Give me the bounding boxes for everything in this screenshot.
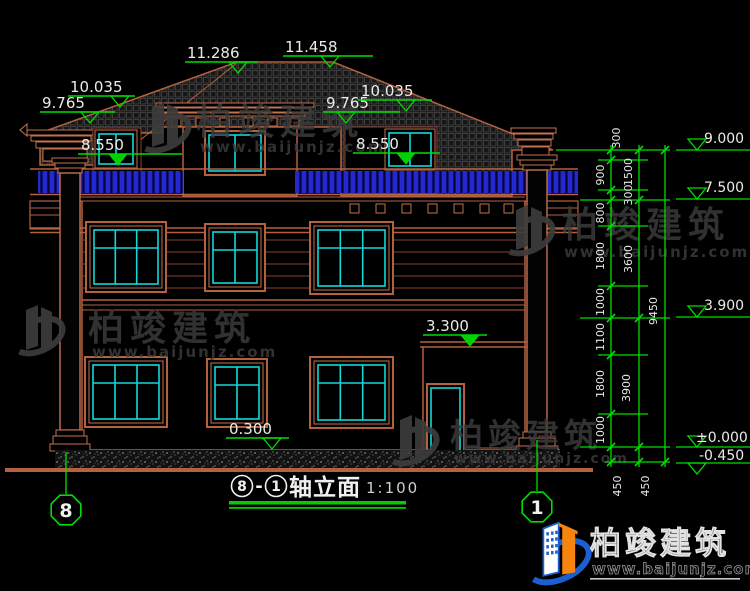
dim-label: 3900 — [620, 374, 633, 402]
level-value: 10.035 — [361, 82, 414, 100]
brand-building-icon — [543, 523, 558, 576]
watermark-building-icon — [400, 415, 412, 460]
level-value: 0.300 — [229, 420, 272, 438]
level-value: 3.300 — [426, 317, 469, 335]
balcony-railing — [30, 169, 578, 195]
watermark-url: www.baijunjz.com — [92, 343, 277, 361]
dim-label: 300 — [622, 185, 635, 206]
level-value: 8.550 — [81, 136, 124, 154]
dim-label: 900 — [594, 165, 607, 186]
brand-url: www.baijunjz.com — [592, 560, 750, 578]
drawing-canvas: 柏竣建筑 www.baijunjz.com 柏竣建筑 www.baijunjz.… — [0, 0, 750, 591]
level-value: 8.550 — [356, 135, 399, 153]
watermark: 柏竣建筑 www.baijunjz.com — [382, 415, 629, 470]
window — [310, 222, 393, 294]
title-scale: 1:100 — [366, 479, 419, 497]
dim-label: 1500 — [622, 158, 635, 186]
watermark: 柏竣建筑 www.baijunjz.com — [8, 305, 277, 361]
dim-label-total: 9450 — [647, 297, 660, 325]
axis-number: 8 — [59, 500, 72, 522]
title-text: 轴立面 — [289, 474, 361, 501]
right-pillar — [516, 155, 558, 453]
watermark-url: www.baijunjz.com — [454, 451, 629, 467]
level-value: 11.458 — [285, 38, 338, 56]
dim-label: 1100 — [594, 323, 607, 351]
level-value: 9.000 — [704, 131, 744, 147]
watermark-building-icon — [516, 205, 528, 250]
axis-number: 1 — [530, 497, 543, 519]
dim-label: 3600 — [622, 245, 635, 273]
ground-line — [5, 468, 593, 472]
brand-building-orange — [562, 526, 575, 574]
title-axis-start: 8 — [237, 479, 247, 495]
drawing-title: 8 - 1 轴立面 1:100 — [229, 474, 419, 509]
brand-logo: 柏竣建筑 www.baijunjz.com — [522, 523, 750, 591]
story-level-marks: 9.000 7.500 3.900 ±0.000 -0.450 — [676, 131, 750, 474]
level-value: ±0.000 — [696, 430, 748, 446]
level-value: 3.900 — [704, 298, 744, 314]
title-underline — [229, 501, 406, 505]
title-underline — [229, 507, 406, 509]
level-value: 7.500 — [704, 180, 744, 196]
dim-label: 300 — [610, 128, 623, 149]
brand-name: 柏竣建筑 — [590, 526, 730, 562]
brand-underline — [590, 578, 740, 580]
dim-label: 450 — [639, 476, 652, 497]
dim-label: 1800 — [594, 242, 607, 270]
level-value: -0.450 — [699, 448, 744, 464]
cad-elevation-drawing: 柏竣建筑 www.baijunjz.com 柏竣建筑 www.baijunjz.… — [0, 0, 750, 591]
dim-label: 1800 — [594, 370, 607, 398]
window — [310, 357, 393, 428]
right-eave-cornice — [511, 128, 556, 158]
elevation-mark: 0.300 — [226, 420, 289, 449]
window — [207, 359, 267, 427]
title-separator: - — [255, 476, 262, 497]
window — [85, 357, 167, 427]
window — [205, 224, 265, 291]
dim-label: 800 — [594, 203, 607, 224]
dim-label: 1000 — [594, 288, 607, 316]
watermark-building-icon — [152, 102, 164, 147]
level-value: 9.765 — [42, 94, 85, 112]
window — [86, 222, 166, 292]
dim-label: 450 — [611, 476, 624, 497]
watermark-building-icon — [26, 305, 38, 350]
level-triangle — [688, 463, 706, 474]
watermark-url: www.baijunjz.com — [564, 243, 749, 261]
eave-dentils-right — [350, 204, 513, 213]
second-floor-windows — [86, 222, 393, 294]
level-value: 11.286 — [187, 44, 240, 62]
title-axis-end: 1 — [271, 479, 281, 495]
watermark-name: 柏竣建筑 — [450, 416, 602, 455]
dim-label: 1000 — [594, 416, 607, 444]
